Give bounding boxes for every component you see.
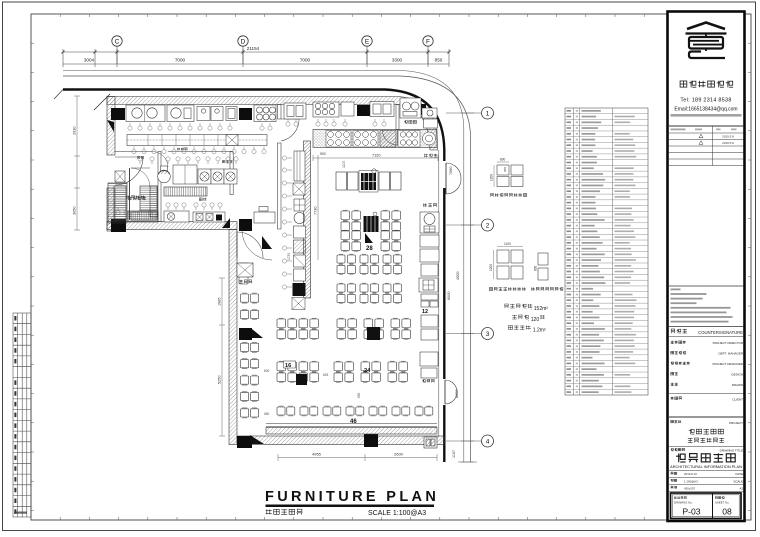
svg-text:600: 600: [503, 167, 507, 172]
svg-text:COUNTERSIGNATURE: COUNTERSIGNATURE: [698, 330, 743, 335]
svg-text:3050: 3050: [73, 207, 77, 215]
svg-text:2019.8.10: 2019.8.10: [684, 472, 697, 476]
svg-text:1:100@A3: 1:100@A3: [684, 479, 698, 483]
svg-text:1: 1: [486, 110, 490, 117]
svg-text:2600: 2600: [394, 452, 404, 457]
svg-text:Tel: 189 2314 8538: Tel: 189 2314 8538: [680, 98, 731, 104]
svg-text:DEPT. MANAGER: DEPT. MANAGER: [718, 352, 743, 356]
svg-text:CLIENT: CLIENT: [732, 398, 743, 402]
svg-text:28: 28: [366, 246, 373, 252]
svg-text:850: 850: [435, 58, 443, 63]
svg-text:2930: 2930: [73, 127, 77, 135]
svg-text:SHEET No.: SHEET No.: [715, 501, 730, 505]
svg-text:3004: 3004: [84, 58, 95, 63]
svg-text:4: 4: [486, 438, 490, 445]
svg-text:D: D: [241, 38, 246, 45]
svg-text:FURNITURE PLAN: FURNITURE PLAN: [265, 489, 439, 505]
svg-text:7060: 7060: [449, 167, 453, 175]
svg-text:DRAWING No.: DRAWING No.: [674, 501, 693, 505]
svg-text:800: 800: [500, 158, 506, 162]
svg-text:1735: 1735: [287, 253, 291, 260]
svg-text:A3: A3: [739, 486, 743, 490]
svg-text:2019.5.8: 2019.5.8: [722, 135, 734, 139]
svg-text:6000: 6000: [455, 390, 459, 398]
svg-text:: 1.2m²: : 1.2m²: [530, 328, 546, 334]
svg-text:1200: 1200: [490, 174, 494, 181]
svg-text:6000: 6000: [447, 292, 451, 300]
svg-text:7730: 7730: [314, 207, 318, 215]
svg-text:PROJECT DIRECTOR: PROJECT DIRECTOR: [713, 341, 744, 345]
svg-text:800: 800: [534, 265, 538, 271]
svg-text:680: 680: [264, 412, 270, 416]
svg-text:DESIGN: DESIGN: [731, 373, 743, 377]
svg-text:1985: 1985: [218, 298, 222, 306]
svg-text:: 120: : 120: [528, 317, 539, 323]
svg-text:SCALE: SCALE: [734, 479, 744, 483]
svg-text:4000: 4000: [456, 272, 460, 280]
svg-text:16: 16: [285, 363, 291, 369]
svg-text:3: 3: [486, 331, 490, 338]
svg-text:PROJECT DESIGNED: PROJECT DESIGNED: [713, 362, 744, 366]
svg-text:08: 08: [722, 507, 732, 517]
svg-text:Email:1665138434@qq.com: Email:1665138434@qq.com: [674, 107, 737, 113]
svg-text:1107: 1107: [452, 450, 456, 458]
svg-text:SCALE 1:100@A3: SCALE 1:100@A3: [368, 510, 426, 517]
svg-text:P-03: P-03: [682, 507, 700, 517]
svg-text:1100: 1100: [342, 161, 346, 168]
svg-text:825: 825: [323, 373, 329, 377]
svg-text:500: 500: [320, 152, 326, 156]
svg-text:7000: 7000: [300, 58, 311, 63]
svg-text:1200: 1200: [489, 264, 493, 271]
svg-text:12: 12: [422, 309, 428, 315]
svg-text:3300: 3300: [392, 58, 403, 63]
svg-text:4955: 4955: [312, 452, 322, 457]
svg-text:800: 800: [264, 369, 270, 373]
svg-text:DRAWN: DRAWN: [732, 383, 743, 387]
svg-text:2: 2: [486, 222, 490, 229]
svg-text:PROJECT: PROJECT: [729, 421, 743, 425]
svg-text:C: C: [115, 38, 120, 45]
svg-text:46: 46: [350, 419, 357, 425]
svg-text:1100: 1100: [504, 242, 511, 246]
svg-text:: 152m²: : 152m²: [531, 306, 548, 312]
svg-text:21154: 21154: [247, 46, 260, 51]
svg-text:420x297: 420x297: [684, 486, 695, 490]
svg-text:7120: 7120: [372, 154, 380, 158]
svg-text:650: 650: [357, 392, 361, 398]
svg-text:DATE: DATE: [736, 472, 744, 476]
svg-text:ARCHITECTURAL INFORMATION PLAN: ARCHITECTURAL INFORMATION PLAN: [670, 464, 742, 469]
svg-text:24: 24: [364, 368, 371, 374]
svg-text:5250: 5250: [218, 376, 222, 384]
svg-text:2019.5.8: 2019.5.8: [722, 141, 734, 145]
svg-text:DRAWING TITLE: DRAWING TITLE: [720, 449, 743, 453]
svg-text:F: F: [426, 38, 430, 45]
svg-text:7000: 7000: [175, 58, 186, 63]
svg-text:E: E: [365, 38, 370, 45]
